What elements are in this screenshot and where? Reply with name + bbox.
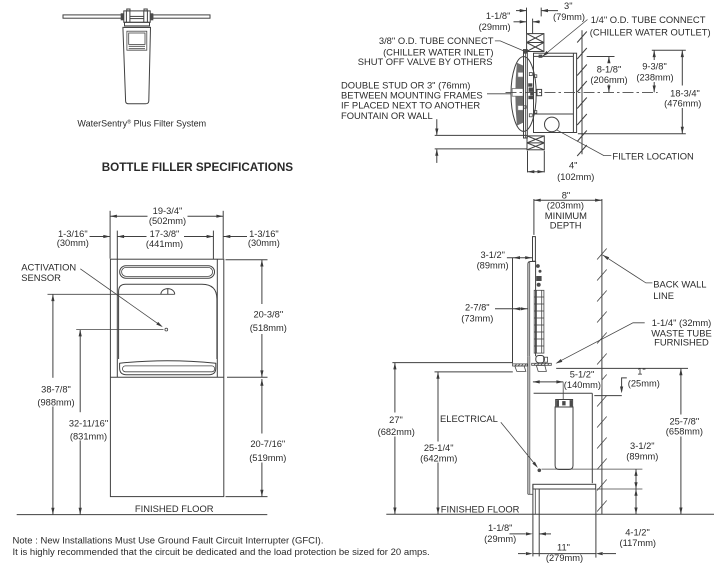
svg-text:(30mm): (30mm) xyxy=(57,238,89,248)
svg-text:It is highly recommended that: It is highly recommended that the circui… xyxy=(13,547,430,558)
svg-text:(831mm): (831mm) xyxy=(70,431,107,441)
svg-text:SENSOR: SENSOR xyxy=(21,272,61,283)
svg-text:(988mm): (988mm) xyxy=(37,397,74,407)
svg-text:(117mm): (117mm) xyxy=(620,538,657,548)
svg-text:1": 1" xyxy=(637,366,645,376)
svg-text:(642mm): (642mm) xyxy=(420,453,457,463)
svg-text:(29mm): (29mm) xyxy=(479,22,511,32)
svg-text:32-11/16": 32-11/16" xyxy=(69,418,108,428)
svg-text:(476mm): (476mm) xyxy=(664,99,701,109)
svg-text:(238mm): (238mm) xyxy=(636,73,673,83)
svg-text:5-1/2": 5-1/2" xyxy=(570,369,595,379)
svg-text:25-1/4": 25-1/4" xyxy=(424,443,454,453)
svg-text:3/8" O.D. TUBE CONNECT: 3/8" O.D. TUBE CONNECT xyxy=(379,35,494,46)
svg-text:(658mm): (658mm) xyxy=(666,427,703,437)
svg-text:LINE: LINE xyxy=(653,290,674,301)
svg-text:2-7/8": 2-7/8" xyxy=(465,303,490,313)
svg-text:(519mm): (519mm) xyxy=(249,453,286,463)
svg-text:18-3/4": 18-3/4" xyxy=(670,88,700,98)
svg-text:(29mm): (29mm) xyxy=(484,534,516,544)
svg-text:ACTIVATION: ACTIVATION xyxy=(21,261,76,272)
svg-text:(25mm): (25mm) xyxy=(628,378,660,388)
svg-text:8-1/8": 8-1/8" xyxy=(597,65,622,75)
svg-text:ELECTRICAL: ELECTRICAL xyxy=(440,413,498,424)
svg-text:3-1/2": 3-1/2" xyxy=(480,250,505,260)
svg-text:FINISHED FLOOR: FINISHED FLOOR xyxy=(135,503,214,514)
svg-text:1-1/8": 1-1/8" xyxy=(488,523,513,533)
svg-text:4": 4" xyxy=(569,161,577,171)
svg-text:38-7/8": 38-7/8" xyxy=(41,384,71,394)
svg-text:FURNISHED: FURNISHED xyxy=(654,337,709,348)
svg-text:1-1/4" (32mm): 1-1/4" (32mm) xyxy=(652,317,712,328)
svg-text:(682mm): (682mm) xyxy=(378,427,415,437)
svg-text:8": 8" xyxy=(562,191,570,201)
svg-text:(89mm): (89mm) xyxy=(626,452,658,462)
svg-text:(89mm): (89mm) xyxy=(477,261,509,271)
svg-text:(279mm): (279mm) xyxy=(546,553,583,563)
svg-text:BOTTLE FILLER SPECIFICATIONS: BOTTLE FILLER SPECIFICATIONS xyxy=(102,161,294,174)
svg-text:20-3/8": 20-3/8" xyxy=(253,310,283,320)
svg-text:17-3/8": 17-3/8" xyxy=(150,229,180,239)
svg-text:(441mm): (441mm) xyxy=(146,239,183,249)
svg-text:(203mm): (203mm) xyxy=(547,200,584,210)
svg-text:9-3/8": 9-3/8" xyxy=(642,62,667,72)
svg-text:(73mm): (73mm) xyxy=(461,313,493,323)
svg-text:27": 27" xyxy=(389,415,403,425)
svg-text:19-3/4": 19-3/4" xyxy=(153,206,183,216)
svg-text:WaterSentry® Plus Filter Syste: WaterSentry® Plus Filter System xyxy=(77,118,206,128)
svg-text:DEPTH: DEPTH xyxy=(550,219,582,230)
svg-text:(CHILLER WATER OUTLET): (CHILLER WATER OUTLET) xyxy=(590,26,711,37)
svg-text:Note : New Installations Must: Note : New Installations Must Use Ground… xyxy=(13,536,324,547)
svg-text:(102mm): (102mm) xyxy=(557,172,594,182)
svg-text:IF PLACED NEXT TO ANOTHER: IF PLACED NEXT TO ANOTHER xyxy=(341,100,480,111)
svg-text:(140mm): (140mm) xyxy=(564,380,601,390)
svg-text:11": 11" xyxy=(557,543,570,553)
svg-text:FINISHED FLOOR: FINISHED FLOOR xyxy=(441,503,520,514)
svg-text:(206mm): (206mm) xyxy=(590,75,627,85)
svg-text:FILTER LOCATION: FILTER LOCATION xyxy=(612,151,693,162)
svg-text:(79mm): (79mm) xyxy=(553,12,585,22)
svg-text:1-1/8": 1-1/8" xyxy=(486,11,511,21)
svg-text:4-1/2": 4-1/2" xyxy=(625,528,650,538)
svg-text:1/4" O.D. TUBE CONNECT: 1/4" O.D. TUBE CONNECT xyxy=(591,14,706,25)
svg-text:SHUT OFF VALVE BY OTHERS: SHUT OFF VALVE BY OTHERS xyxy=(358,56,493,67)
svg-text:3-1/2": 3-1/2" xyxy=(630,441,655,451)
svg-text:(518mm): (518mm) xyxy=(250,323,287,333)
svg-text:BACK WALL: BACK WALL xyxy=(653,278,706,289)
svg-text:(30mm): (30mm) xyxy=(248,238,280,248)
svg-text:3": 3" xyxy=(564,1,572,11)
svg-text:FOUNTAIN OR WALL: FOUNTAIN OR WALL xyxy=(341,110,433,121)
svg-text:20-7/16": 20-7/16" xyxy=(250,439,285,449)
svg-text:(502mm): (502mm) xyxy=(149,216,186,226)
svg-text:25-7/8": 25-7/8" xyxy=(669,416,699,426)
